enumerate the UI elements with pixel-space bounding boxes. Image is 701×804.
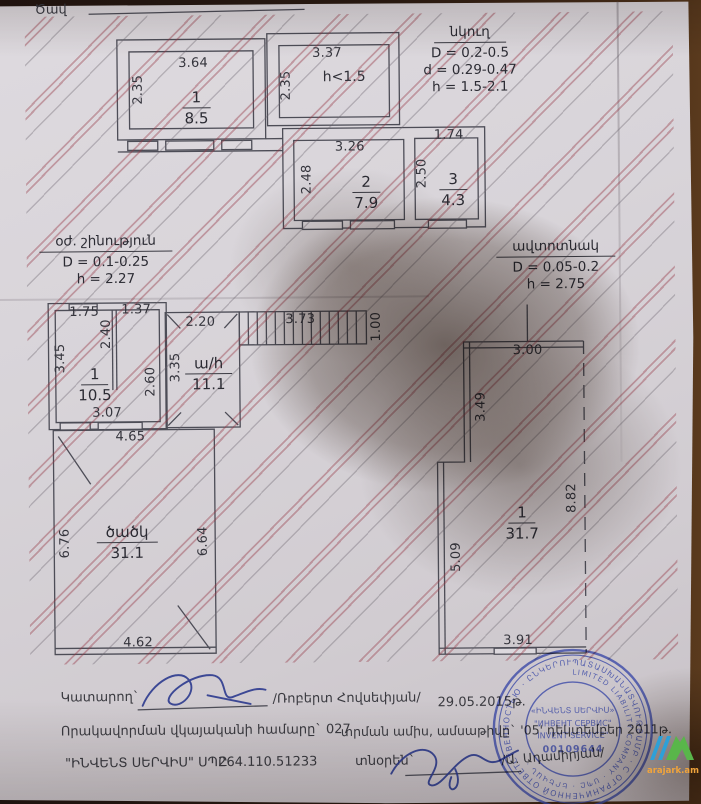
logo-mountain-icon [650,736,694,760]
watermark-logo: arajark.am [646,728,700,778]
watermark-text: arajark.am [647,766,699,776]
svg-text:«ԻՆՎԵՆՏ ՍԵՐՎԻՍ»: «ԻՆՎԵՆՏ ՍԵՐՎԻՍ» [531,705,615,716]
stamp-center-text: «ԻՆՎԵՆՏ ՍԵՐՎԻՍ» "ИНВЕНТ СЕРВИС" INVENT S… [531,705,615,756]
photographed-document: Ծավ նկուղ D = 0.2-0.5 d = 0.29-0.47 h = … [0,0,701,804]
company-stamp: ՊԱՏԱՍԽԱՆԱՏՎՈՒԹՅԱՄԲ · С ОГРАНИЧЕННОЙ ОТВЕ… [489,645,656,804]
svg-text:00109644: 00109644 [543,744,604,756]
sheet-content: Ծավ նկուղ D = 0.2-0.5 d = 0.29-0.47 h = … [0,0,701,804]
executor-signature-flourish [208,695,251,704]
svg-text:"ИНВЕНТ СЕРВИС": "ИНВЕНТ СЕРВИС" [534,718,612,729]
svg-text:INVENT SERVICE": INVENT SERVICE" [537,730,608,741]
executor-signature [142,674,265,705]
